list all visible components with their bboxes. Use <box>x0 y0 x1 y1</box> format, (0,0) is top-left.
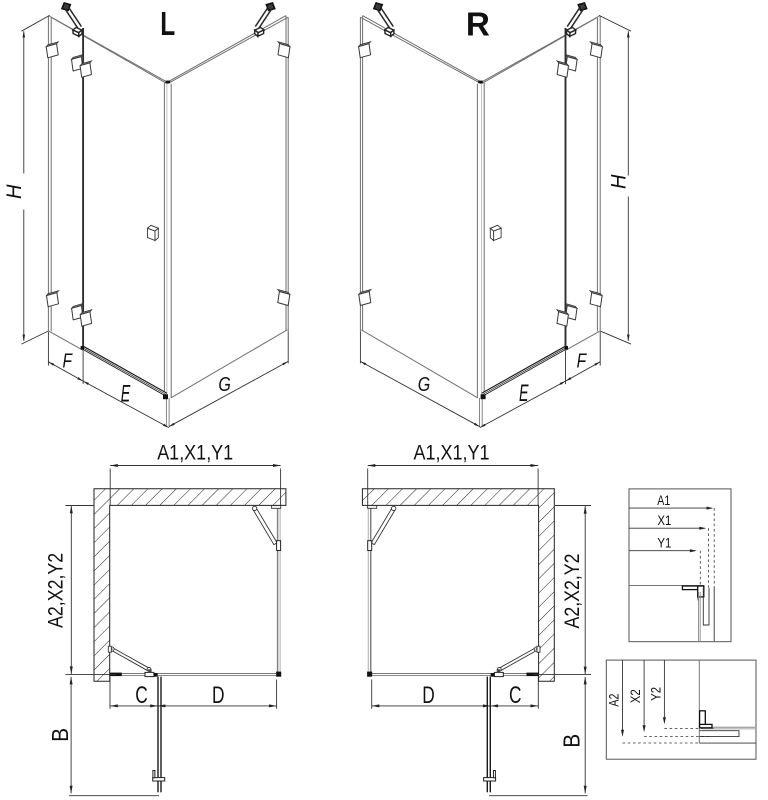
svg-text:A1,X1,Y1: A1,X1,Y1 <box>157 440 233 464</box>
svg-text:F: F <box>577 349 588 372</box>
svg-text:A1,X1,Y1: A1,X1,Y1 <box>414 440 490 464</box>
svg-text:H: H <box>2 184 26 199</box>
svg-text:E: E <box>121 380 131 407</box>
svg-text:E: E <box>519 380 529 407</box>
svg-text:R: R <box>466 6 490 43</box>
svg-text:C: C <box>509 682 522 709</box>
svg-text:F: F <box>63 349 74 372</box>
svg-text:H: H <box>607 174 631 189</box>
svg-text:A2,X2,Y2: A2,X2,Y2 <box>560 554 584 629</box>
svg-text:L: L <box>160 5 175 42</box>
svg-text:Y1: Y1 <box>657 535 671 551</box>
svg-text:X1: X1 <box>657 512 671 528</box>
svg-text:B: B <box>47 728 73 742</box>
svg-text:A2,X2,Y2: A2,X2,Y2 <box>44 553 68 628</box>
svg-text:G: G <box>218 373 231 396</box>
svg-text:Y2: Y2 <box>647 687 663 701</box>
svg-text:D: D <box>422 682 435 709</box>
svg-text:A1: A1 <box>657 492 670 508</box>
svg-text:G: G <box>418 373 431 396</box>
svg-text:D: D <box>212 682 225 709</box>
svg-text:B: B <box>558 734 584 748</box>
svg-text:C: C <box>135 682 148 709</box>
svg-text:A2: A2 <box>606 693 622 706</box>
svg-text:X2: X2 <box>627 689 643 703</box>
